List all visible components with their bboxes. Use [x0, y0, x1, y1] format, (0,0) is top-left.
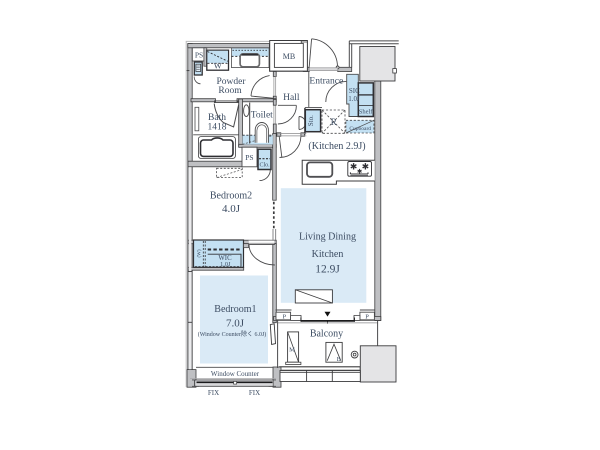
- svg-text:7.0J: 7.0J: [226, 318, 245, 330]
- svg-text:R: R: [331, 117, 337, 127]
- svg-text:12.9J: 12.9J: [315, 263, 340, 275]
- svg-text:Sto.: Sto.: [307, 115, 315, 126]
- svg-text:Clo.: Clo.: [260, 163, 271, 169]
- svg-text:Bedroom1: Bedroom1: [214, 304, 256, 315]
- svg-text:Living Dining: Living Dining: [299, 232, 356, 243]
- svg-text:FIX: FIX: [249, 389, 260, 397]
- svg-text:Bedroom2: Bedroom2: [210, 191, 252, 202]
- svg-text:Room: Room: [218, 86, 242, 96]
- svg-text:Cupboard: Cupboard: [349, 126, 371, 132]
- svg-text:Shelf: Shelf: [359, 109, 374, 116]
- svg-text:M: M: [289, 347, 295, 354]
- svg-text:(Kitchen 2.9J): (Kitchen 2.9J): [308, 141, 365, 152]
- svg-text:FIX: FIX: [208, 389, 219, 397]
- svg-text:Window Counter: Window Counter: [211, 370, 260, 378]
- svg-text:Kitchen: Kitchen: [312, 249, 344, 260]
- svg-text:MB: MB: [283, 52, 295, 61]
- svg-text:SIC: SIC: [349, 87, 360, 95]
- svg-text:PS: PS: [195, 51, 203, 60]
- svg-text:Balcony: Balcony: [310, 329, 343, 340]
- svg-text:Entrance: Entrance: [309, 77, 343, 87]
- svg-text:1.0J: 1.0J: [220, 261, 231, 268]
- svg-text:(Window Counter除く 6.0J): (Window Counter除く 6.0J): [198, 330, 267, 338]
- svg-text:1418: 1418: [208, 122, 227, 132]
- svg-text:W: W: [214, 61, 222, 71]
- svg-text:Toilet: Toilet: [251, 111, 273, 121]
- svg-text:1.0J: 1.0J: [348, 95, 360, 103]
- svg-text:B: B: [337, 357, 341, 363]
- svg-text:P: P: [365, 313, 369, 320]
- svg-text:Hall: Hall: [283, 93, 300, 103]
- svg-text:(W): (W): [198, 249, 203, 257]
- svg-text:PS: PS: [245, 153, 253, 162]
- svg-text:4.0J: 4.0J: [222, 203, 241, 215]
- svg-text:P: P: [282, 313, 286, 320]
